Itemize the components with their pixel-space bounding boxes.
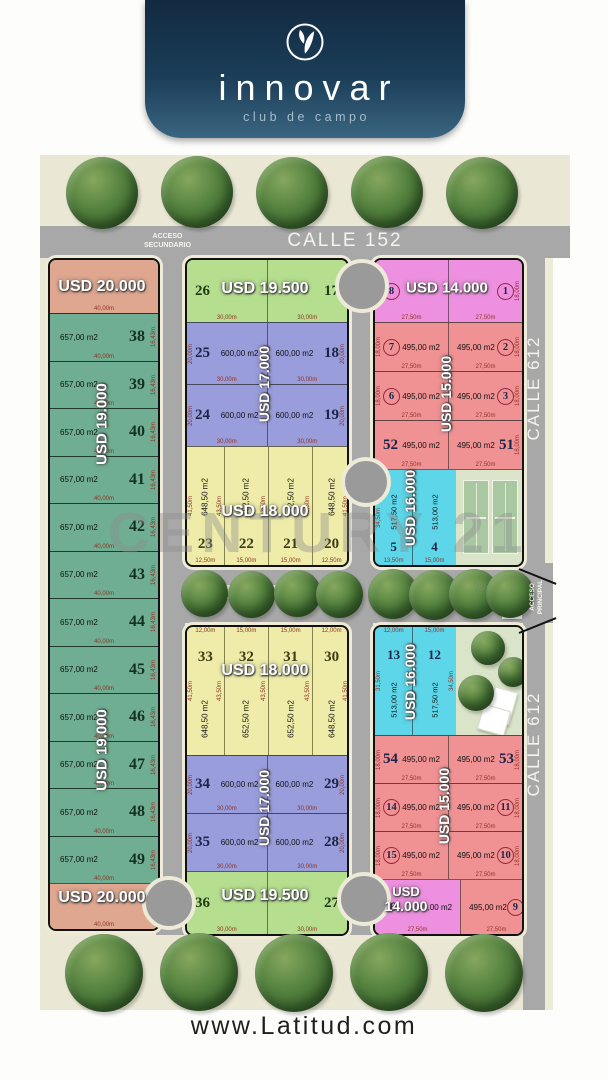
lot-width-dim: 27,50m [449, 364, 522, 370]
lot-depth-dim: 16,43m [151, 327, 157, 347]
lot-number: 44 [129, 613, 145, 631]
lot-area: 495,00 m2 [457, 755, 495, 764]
lot-depth-dim: 16,43m [151, 470, 157, 490]
cul-de-sac [337, 872, 391, 926]
lot-number: 38 [129, 328, 145, 346]
lot-area: 657,00 m2 [60, 475, 98, 484]
lot-depth-dim: 20,00m [188, 343, 194, 363]
lot-depth-dim: 41,50m [188, 681, 194, 701]
lot-number: 33 [198, 649, 213, 666]
lot-area: 495,00 m2 [402, 441, 440, 450]
lot-area: 657,00 m2 [60, 523, 98, 532]
lot-width-dim: 30,00m [268, 927, 348, 933]
lot-number: 48 [129, 803, 145, 821]
lot-number: 18 [324, 345, 339, 362]
lot-38: 657,00 m23840,00m16,43m [50, 313, 158, 361]
lot-depth-dim: 18,00m [376, 337, 382, 357]
lot-width-dim: 30,00m [187, 315, 267, 321]
lot-width-dim: 30,00m [187, 377, 267, 383]
lot-depth-dim: 18,00m [376, 749, 382, 769]
lot-24: 24600,00 m230,00m20,00m [187, 385, 267, 446]
lot-51: 495,00 m25127,50m18,00m [448, 421, 522, 469]
acceso-principal-line2: PRINCIPAL [537, 580, 545, 615]
cul-de-sac [335, 259, 389, 313]
tree-icon [316, 571, 363, 618]
lot-number: 14 [383, 799, 400, 816]
lot-depth-dim: 18,00m [515, 845, 521, 865]
lot-area: 648,50 m2 [201, 700, 210, 738]
lot-depth-dim: 16,43m [151, 375, 157, 395]
lot-12: 15,00m12517,50 m234,50m [412, 627, 456, 735]
lot-number: 2 [497, 339, 514, 356]
lot-width-dim: 30,00m [268, 864, 348, 870]
lot-number: 45 [129, 661, 145, 679]
lot-width-dim: 15,00m [269, 628, 312, 634]
lot-31: 15,00m31652,50 m243,50m [268, 627, 312, 755]
price-label-usd-14000-top: USD 14.000 [406, 280, 488, 297]
sprout-icon [285, 22, 325, 62]
lot-32: 15,00m32652,50 m243,50m [224, 627, 268, 755]
lot-number: 11 [497, 799, 514, 816]
tree-icon [471, 631, 505, 665]
lot-28: 600,00 m22830,00m20,00m [267, 814, 348, 871]
tree-icon [255, 934, 333, 1012]
street-label-calle-612-upper: CALLE 612 [524, 336, 544, 441]
lot-45: 657,00 m24540,00m16,43m [50, 646, 158, 694]
lot-area: 600,00 m2 [221, 411, 259, 420]
lot-area: 495,00 m2 [402, 803, 440, 812]
cul-de-sac [142, 876, 196, 930]
lot-depth-dim: 20,00m [340, 343, 346, 363]
tree-icon [65, 934, 143, 1012]
lot-depth-dim: 18,00m [515, 281, 521, 301]
lot-number: 19 [324, 407, 339, 424]
lot-area: 600,00 m2 [276, 411, 314, 420]
lot-area: 652,50 m2 [286, 700, 295, 738]
tree-icon [66, 157, 138, 229]
tree-icon [458, 675, 494, 711]
lot-44: 657,00 m24440,00m16,43m [50, 598, 158, 646]
tree-icon [486, 570, 534, 618]
lot-width-dim: 27,50m [449, 824, 522, 830]
brand-name: innovar [218, 70, 399, 106]
lot-width-dim: 15,00m [225, 628, 268, 634]
price-label-usd-16000-bottom: USD 16.000 [402, 644, 418, 720]
lot-number: 30 [324, 649, 339, 666]
price-label-usd-18000-bottom: USD 18.000 [221, 662, 308, 680]
lot-width-dim: 30,00m [268, 806, 348, 812]
lot-number: 6 [383, 388, 400, 405]
lot-30: 12,00m30648,50 m241,50m [312, 627, 349, 755]
tree-icon [445, 934, 523, 1012]
tree-icon [274, 570, 321, 617]
lot-depth-dim: 18,00m [376, 797, 382, 817]
lot-depth-dim: 18,00m [515, 337, 521, 357]
lot-18: 600,00 m21830,00m20,00m [267, 323, 348, 384]
acceso-secundario-line2: SECUNDARIO [130, 242, 205, 251]
tree-icon [161, 156, 233, 228]
lot-width-dim: 30,00m [187, 864, 267, 870]
lot-number: 24 [195, 407, 210, 424]
registered-mark: ® [476, 578, 486, 593]
lot-number: 9 [507, 899, 524, 916]
brand-badge: innovar club de campo [145, 0, 465, 138]
lot-number: 46 [129, 708, 145, 726]
price-line2: 14.000 [385, 899, 428, 914]
park-area [456, 627, 522, 735]
lot-area: 600,00 m2 [276, 780, 314, 789]
lot-number: 1 [497, 283, 514, 300]
lot-number: 52 [383, 437, 398, 454]
lot-width-dim: 30,00m [187, 806, 267, 812]
street-label-acceso-principal: ACCESO PRINCIPAL [529, 580, 545, 615]
lot-area: 495,00 m2 [457, 392, 495, 401]
lot-area: 657,00 m2 [60, 855, 98, 864]
lot-depth-dim: 16,43m [151, 707, 157, 727]
price-label-usd-18000-top: USD 18.000 [221, 503, 308, 521]
lot-area: 657,00 m2 [60, 713, 98, 722]
lot-area: 495,00 m2 [457, 803, 495, 812]
lot-width-dim: 40,00m [50, 876, 158, 882]
lot-number: 29 [324, 776, 339, 793]
tree-icon [446, 157, 518, 229]
price-label-usd-19500-top: USD 19.500 [221, 280, 308, 298]
lot-width-dim: 27,50m [375, 872, 448, 878]
lot-area: 600,00 m2 [221, 780, 259, 789]
lot-area: 495,00 m2 [457, 441, 495, 450]
lot-number: 15 [383, 847, 400, 864]
lot-depth-dim: 16,43m [151, 802, 157, 822]
lot-depth-dim: 34,50m [449, 671, 455, 691]
lot-number: 26 [195, 283, 210, 300]
lot-number: 34 [195, 776, 210, 793]
lot-width-dim: 27,50m [449, 776, 522, 782]
tree-icon [498, 657, 524, 687]
lot-width-dim: 27,50m [375, 315, 448, 321]
century21-watermark: CENTURY 21 [108, 500, 530, 566]
lot-row-33-30: 12,00m33648,50 m241,50m43,50m 15,00m3265… [187, 627, 347, 755]
lot-area: 657,00 m2 [60, 570, 98, 579]
lot-number: 53 [499, 751, 514, 768]
lot-area: 657,00 m2 [60, 333, 98, 342]
tree-icon [350, 933, 428, 1011]
lot-width-dim: 40,00m [50, 829, 158, 835]
lot-area: 495,00 m2 [402, 343, 440, 352]
lot-number: 49 [129, 851, 145, 869]
price-label-usd-16000-top: USD 16.000 [402, 470, 418, 546]
lot-11: 495,00 m21127,50m18,00m [448, 784, 522, 831]
lot-area: 495,00 m2 [457, 343, 495, 352]
lot-width-dim: 12,00m [375, 628, 412, 634]
street-label-calle-612-lower: CALLE 612 [524, 692, 544, 797]
lot-number: 40 [129, 423, 145, 441]
lot-area: 657,00 m2 [60, 618, 98, 627]
lot-width-dim: 27,50m [449, 462, 522, 468]
lot-area: 648,50 m2 [327, 700, 336, 738]
lot-width-dim: 27,50m [461, 927, 524, 933]
lot-area: 657,00 m2 [60, 760, 98, 769]
lot-width-dim: 40,00m [50, 354, 158, 360]
lot-width-dim: 27,50m [449, 413, 522, 419]
cyan-and-park-zone: 12,00m13513,00 m231,50m 15,00m12517,50 m… [375, 627, 522, 735]
price-label-usd-14000-bottom: USD 14.000 [385, 885, 428, 915]
price-label-usd-19000-upper: USD 19.000 [94, 383, 111, 465]
lot-depth-dim: 16,43m [151, 660, 157, 680]
lot-29: 600,00 m22930,00m20,00m [267, 756, 348, 813]
lot-depth-dim: 31,50m [376, 671, 382, 691]
lot-width-dim: 30,00m [268, 439, 348, 445]
lot-25: 25600,00 m230,00m20,00m [187, 323, 267, 384]
lot-49: 657,00 m24940,00m16,43m [50, 836, 158, 884]
lot-area: 652,50 m2 [242, 700, 251, 738]
lot-number: 7 [383, 339, 400, 356]
lot-35: 35600,00 m230,00m20,00m [187, 814, 267, 871]
lot-area: 600,00 m2 [221, 838, 259, 847]
lot-depth-dim: 43,50m [261, 681, 267, 701]
lot-2: 495,00 m2227,50m18,00m [448, 323, 522, 371]
lot-area: 600,00 m2 [221, 349, 259, 358]
tree-icon [181, 570, 228, 617]
lot-53: 495,00 m25327,50m18,00m [448, 736, 522, 783]
lot-area: 657,00 m2 [60, 808, 98, 817]
lot-depth-dim: 20,00m [188, 774, 194, 794]
price-label-usd-15000-top: USD 15.000 [438, 356, 454, 432]
acceso-secundario-line1: ACCESO [130, 233, 205, 242]
lot-number: 12 [428, 647, 441, 663]
lot-area: 495,00 m2 [402, 755, 440, 764]
price-label-usd-19500-bottom: USD 19.500 [221, 887, 308, 905]
lot-depth-dim: 18,00m [515, 797, 521, 817]
lot-width-dim: 15,00m [413, 628, 456, 634]
lot-width-dim: 30,00m [268, 377, 348, 383]
lot-number: 41 [129, 471, 145, 489]
lot-19: 600,00 m21930,00m20,00m [267, 385, 348, 446]
lot-area: 600,00 m2 [276, 838, 314, 847]
lot-depth-dim: 18,00m [515, 435, 521, 455]
street-label-acceso-secundario: ACCESO SECUNDARIO [130, 233, 205, 251]
lot-width-dim: 30,00m [187, 439, 267, 445]
lot-number: 43 [129, 566, 145, 584]
lot-width-dim: 40,00m [50, 639, 158, 645]
lot-number: 54 [383, 751, 398, 768]
lot-number: 36 [195, 895, 210, 912]
lot-number: 25 [195, 345, 210, 362]
lot-number: 3 [497, 388, 514, 405]
lot-48: 657,00 m24840,00m16,43m [50, 788, 158, 836]
lot-33: 12,00m33648,50 m241,50m43,50m [187, 627, 224, 755]
lot-9: 495,00 m2927,50m [460, 880, 524, 934]
lot-depth-dim: 20,00m [340, 405, 346, 425]
lot-area: 517,50 m2 [430, 683, 439, 718]
lot-depth-dim: 20,00m [188, 405, 194, 425]
lot-number: 39 [129, 376, 145, 394]
lot-area: 495,00 m2 [457, 851, 495, 860]
lot-width-dim: 27,50m [449, 315, 522, 321]
price-label-usd-15000-bottom: USD 15.000 [436, 768, 452, 844]
acceso-principal-line1: ACCESO [529, 580, 537, 615]
tree-icon [160, 933, 238, 1011]
lot-area: 657,00 m2 [60, 380, 98, 389]
lot-area: 495,00 m2 [402, 851, 440, 860]
site-plan: CALLE 152 ACCESO SECUNDARIO CALLE 612 CA… [0, 0, 608, 1080]
lot-area: 657,00 m2 [60, 428, 98, 437]
lot-depth-dim: 16,43m [151, 422, 157, 442]
lot-depth-dim: 20,00m [188, 832, 194, 852]
lot-area: 600,00 m2 [276, 349, 314, 358]
lot-number: 35 [195, 834, 210, 851]
lot-area: 513,00 m2 [389, 683, 398, 718]
tree-icon [256, 157, 328, 229]
lot-depth-dim: 20,00m [340, 774, 346, 794]
lot-depth-dim: 18,00m [515, 386, 521, 406]
lot-width-dim: 12,00m [313, 628, 349, 634]
lot-depth-dim: 20,00m [340, 832, 346, 852]
website-url: www.Latitud.com [0, 1012, 608, 1041]
calle-152-text: CALLE 152 [287, 230, 402, 252]
lot-depth-dim: 43,50m [217, 681, 223, 701]
tree-icon [351, 156, 423, 228]
lot-number: 10 [497, 847, 514, 864]
lot-area: 657,00 m2 [60, 665, 98, 674]
lot-number: 13 [387, 647, 400, 663]
brand-tagline: club de campo [243, 110, 370, 124]
price-label-usd-19000-lower: USD 19.000 [94, 709, 111, 791]
lot-depth-dim: 41,50m [343, 681, 349, 701]
lot-depth-dim: 18,00m [376, 845, 382, 865]
lot-width-dim: 12,00m [187, 628, 224, 634]
lot-width-dim: 40,00m [50, 686, 158, 692]
lot-depth-dim: 16,43m [151, 850, 157, 870]
lot-width-dim: 27,50m [449, 872, 522, 878]
price-label-usd-17000-bottom: USD 17.000 [256, 770, 272, 846]
lot-width-dim: 30,00m [268, 315, 348, 321]
lot-3: 495,00 m2327,50m18,00m [448, 372, 522, 420]
lot-area: 495,00 m2 [469, 903, 507, 912]
lot-number: 51 [499, 437, 514, 454]
lot-width-dim: 40,00m [50, 591, 158, 597]
price-label-usd-17000-top: USD 17.000 [256, 346, 272, 422]
lot-depth-dim: 16,43m [151, 755, 157, 775]
price-label-usd-20000-top: USD 20.000 [58, 278, 145, 296]
lot-number: 28 [324, 834, 339, 851]
price-label-usd-20000-bottom: USD 20.000 [58, 889, 145, 907]
lot-area: 495,00 m2 [402, 392, 440, 401]
tree-icon [228, 571, 275, 618]
lot-depth-dim: 43,50m [305, 681, 311, 701]
lot-width-dim: 40,00m [50, 922, 158, 928]
lot-depth-dim: 18,00m [515, 749, 521, 769]
lot-depth-dim: 16,43m [151, 612, 157, 632]
lot-34: 34600,00 m230,00m20,00m [187, 756, 267, 813]
lot-depth-dim: 18,00m [376, 386, 382, 406]
lot-number: 47 [129, 756, 145, 774]
lot-10: 495,00 m21027,50m18,00m [448, 832, 522, 879]
lot-depth-dim: 16,43m [151, 565, 157, 585]
lot-width-dim: 40,00m [50, 306, 158, 312]
block-west: 40,00m 657,00 m23840,00m16,43m 657,00 m2… [48, 258, 160, 931]
